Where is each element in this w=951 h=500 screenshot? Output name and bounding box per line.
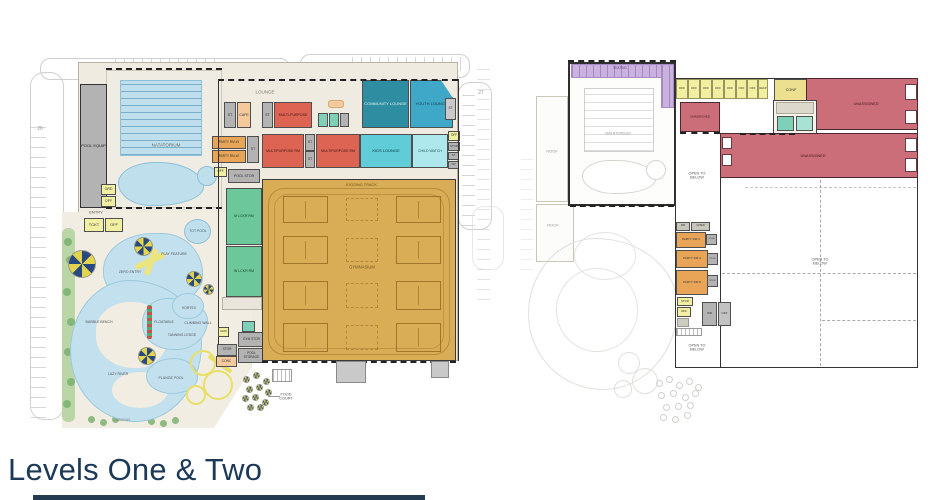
l2-wc [777, 116, 794, 131]
l2-lap-pool-ghost [584, 88, 654, 152]
l2-nat-dash-top [568, 60, 676, 62]
entry-label: ENTRY [89, 211, 102, 216]
ghost-table [660, 414, 667, 421]
roof-label: ROOF [546, 150, 558, 155]
seating-label: SEATING [613, 67, 627, 71]
open-hdash [822, 320, 916, 321]
office-room: OFF [724, 79, 736, 99]
office-room: OFF [700, 79, 712, 99]
l2-stairs [676, 328, 702, 336]
office-room: OFF [688, 79, 700, 99]
ghost-table [684, 412, 691, 419]
slide-canvas: 2627POOL EQUIPNATATORIUMGRDOFFENTRYTCKTO… [0, 0, 951, 500]
l2-nat-dash-bottom [570, 205, 674, 207]
l2-leisure-ghost [582, 160, 656, 194]
party-stor: STOR [707, 253, 718, 265]
ghost-pool [574, 232, 636, 280]
ghost-table [676, 382, 683, 389]
lounge-label: LOUNGE [255, 89, 274, 94]
l2-stor-yellow: STOR [677, 297, 693, 306]
climbing-wall-label: CLIMBING WALL [184, 321, 211, 325]
l2-restroom-fixtures [776, 102, 814, 114]
food-court-label: FOOD COURT [279, 393, 292, 402]
ghost-slide [614, 380, 632, 398]
recp-room: RECP [758, 79, 768, 99]
white-cell [905, 84, 917, 100]
ghost-table [692, 390, 699, 397]
white-cell [722, 154, 732, 166]
open-hdash [722, 273, 916, 274]
white-cell [905, 158, 917, 172]
office-room: OFF [676, 79, 688, 99]
ghost-table [672, 416, 679, 423]
level-two-floor-plan: ROOFROOFSEATINGNATATORIUMOFFOFFOFFOFFOFF… [0, 0, 951, 500]
plunge-pool-label: PLUNGE POOL [158, 376, 183, 380]
slide-title: Levels One & Two [8, 452, 262, 488]
l2-natatorium-label: NATATORIUM [605, 132, 630, 137]
office-room: OFF [747, 79, 758, 99]
lazy-river-label: LAZY RIVER [108, 372, 128, 376]
l2-dash [680, 132, 720, 134]
natatorium-label: NATATORIUM [152, 142, 181, 147]
ghost-table [686, 378, 693, 385]
party-rm-3: PARTY RM 3 [676, 232, 706, 248]
tot-pool-label: TOT POOL [189, 229, 207, 233]
ghost-table [658, 392, 665, 399]
l2-wr-gray: WR [702, 302, 717, 326]
jogging-track-label: JOGGING TRACK [345, 183, 376, 187]
ghost-table [663, 404, 670, 411]
ghost-table [682, 394, 689, 401]
unassigned-label: UNASSIGNED [853, 102, 878, 106]
ghost-table [687, 402, 694, 409]
ghost-table [656, 380, 663, 387]
bottom-bar [33, 495, 425, 500]
white-cell [905, 138, 917, 152]
l2-off-yellow: OFF [677, 307, 691, 317]
corridor-wall [720, 178, 721, 368]
party-rm-5: PARTY RM 5 [676, 270, 708, 295]
l2-road [472, 206, 504, 270]
tanning-ledge-label: TANNING LEDGE [168, 333, 196, 337]
gymnasium-label: GYMNASIUM [349, 266, 375, 271]
cabanas-label: CABANAS [114, 418, 131, 422]
l2-wc [796, 116, 813, 131]
l2-off-gray: OFF [718, 302, 731, 326]
l2-seating-right [661, 64, 674, 108]
wr-cell: WR [676, 222, 690, 231]
l2-dash [740, 133, 795, 135]
ghost-pool [556, 268, 638, 352]
unassigned-label: UNASSIGNED [690, 115, 710, 118]
ghost-table [666, 376, 673, 383]
ghost-table [675, 403, 682, 410]
unassigned-label: UNASSIGNED [800, 154, 825, 158]
party-stor: STOR [706, 234, 717, 245]
white-cell [905, 110, 917, 124]
white-cell [722, 137, 732, 149]
open-hdash [745, 187, 916, 188]
open-below-label: OPEN TO BELOW [812, 258, 829, 267]
zero-entry-label: ZERO ENTRY [119, 270, 142, 274]
office-room: OFF [736, 79, 747, 99]
conf-room: CONF [774, 79, 808, 102]
cater-cell: CATER [691, 222, 710, 231]
vortex-label: VORTEX [182, 306, 196, 310]
floatable-label: FLOATABLE [154, 320, 174, 324]
office-room: OFF [712, 79, 724, 99]
open-below-label: OPEN TO BELOW [689, 344, 706, 353]
party-rm-4: PARTY RM 4 [676, 250, 708, 268]
party-stor: STOR [707, 275, 718, 287]
ghost-ticks [521, 150, 533, 270]
roof-label: ROOF [547, 224, 559, 229]
l2-spa-ghost [646, 160, 666, 180]
bubble-bench-label: BUBBLE BENCH [85, 320, 112, 324]
open-below-label: OPEN TO BELOW [689, 172, 706, 181]
ghost-table [670, 390, 677, 397]
ghost-slide [632, 368, 658, 394]
l2-util [677, 318, 689, 327]
play-feature-label: PLAY FEATURE [161, 252, 187, 256]
